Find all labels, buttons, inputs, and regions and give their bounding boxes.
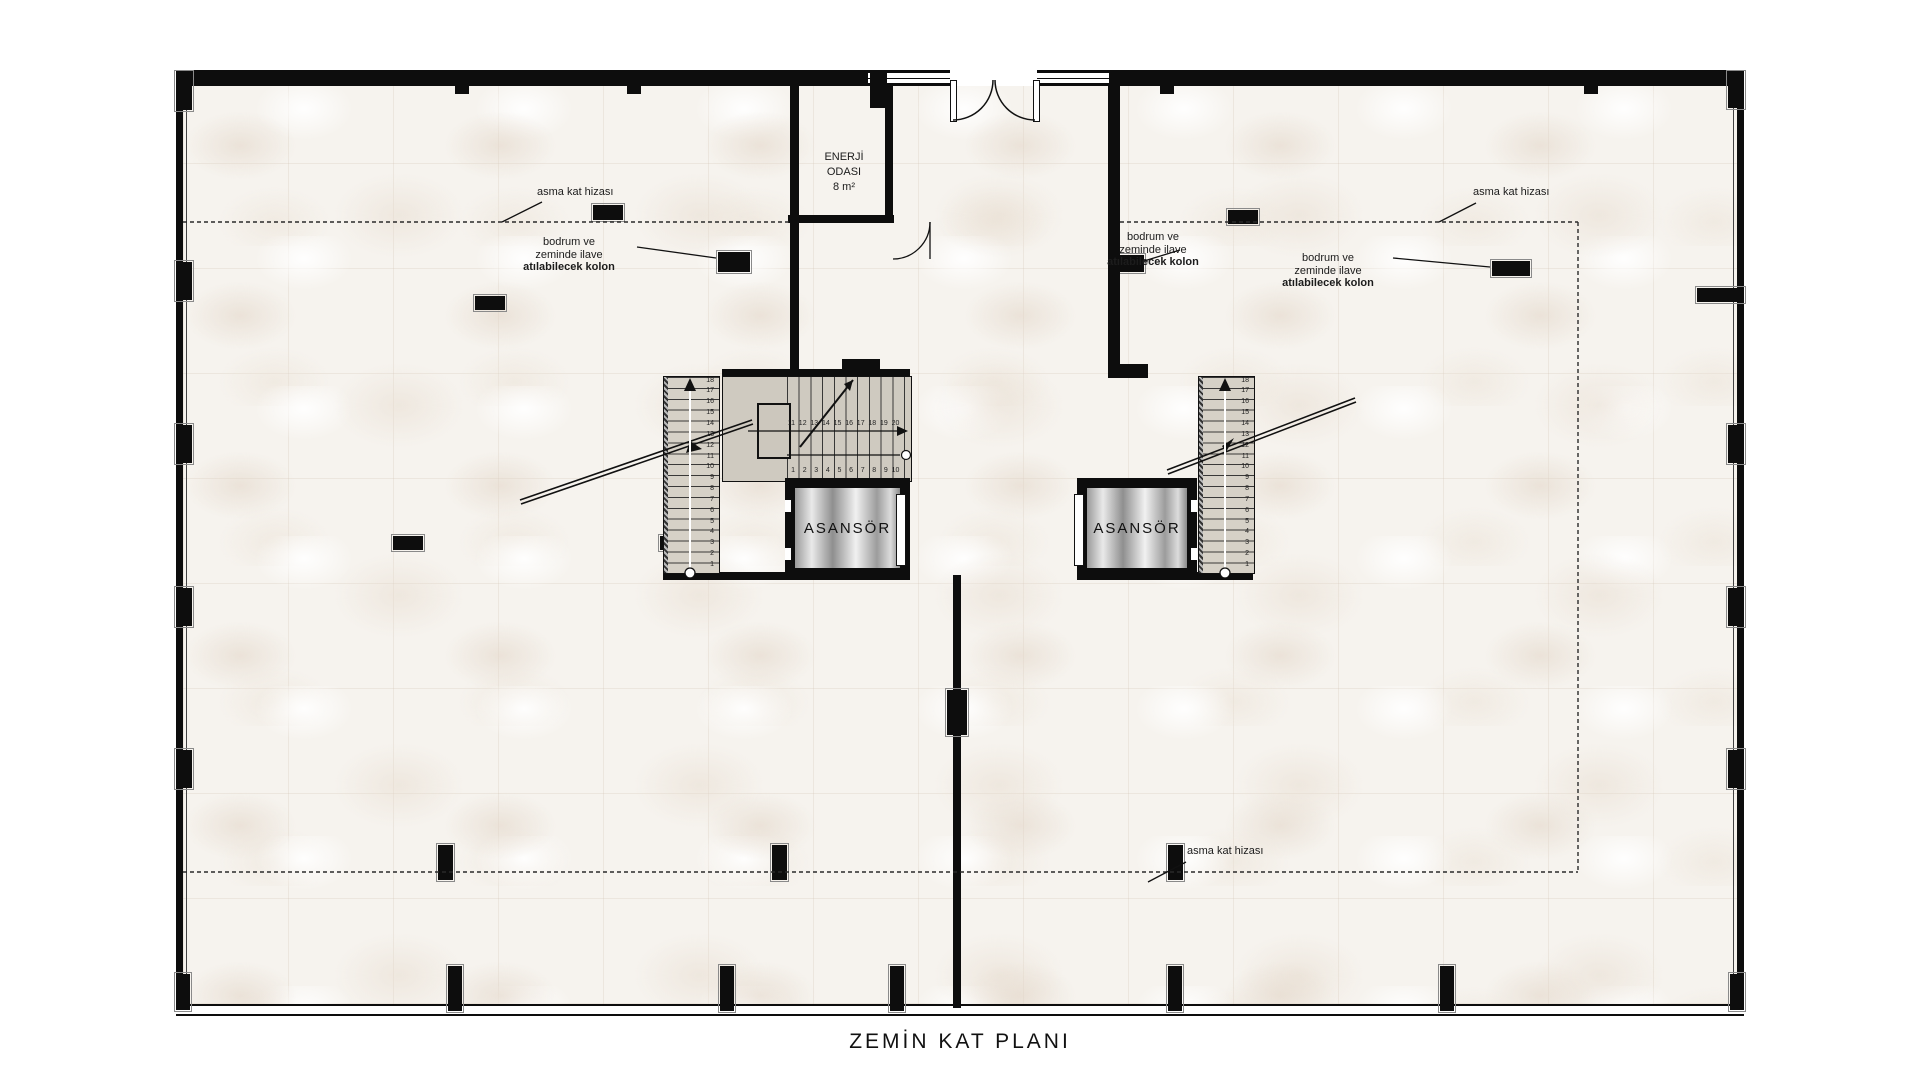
stair-step-number: 18 [702,377,714,385]
stair-step-number: 19 [876,420,888,428]
column [1168,845,1183,880]
stair-step-number: 16 [1237,398,1249,406]
stair-step-number: 4 [1237,528,1249,536]
column [176,72,192,110]
wall-stub [1108,364,1148,378]
stair-step-number: 2 [1237,550,1249,558]
stair-step-number: 1 [702,561,714,569]
elevator-left-label: ASANSÖR [804,520,891,537]
stair-step-number: 10 [702,463,714,471]
stair-step-number: 4 [818,467,830,475]
column [176,262,192,300]
stair-step-number: 15 [829,420,841,428]
mullion-tick [1584,86,1598,94]
column-note-left: bodrum ve zeminde ilave atılabilecek kol… [500,236,638,274]
column [475,296,505,310]
shaft-block [870,72,887,108]
entrance-door-leaf-right [1033,80,1040,122]
stair-step-number: 8 [1237,485,1249,493]
mezzanine-label-bottom: asma kat hizası [1187,845,1263,858]
mullion-tick [1160,86,1174,94]
column-note-line1: bodrum ve [1090,231,1216,244]
stair-step-number: 1 [783,467,795,475]
stair-step-number: 7 [702,496,714,504]
elevator-vent [785,548,791,560]
stair-step-number: 5 [1237,518,1249,526]
stair-step-number: 3 [806,467,818,475]
stair-step-number: 16 [702,398,714,406]
column-note-line3: atılabilecek kolon [1090,256,1216,269]
energy-room-area: 8 m² [796,180,892,195]
stair-step-number: 6 [1237,507,1249,515]
stair-step-number: 17 [702,387,714,395]
column-note-target-left [718,252,750,272]
stair-step-number: 4 [702,528,714,536]
stair-step-number: 6 [841,467,853,475]
energy-room-bottom-wall [788,215,894,223]
stair-step-number: 1 [1237,561,1249,569]
stair-eye [757,403,791,459]
column-note-line1: bodrum ve [500,236,638,249]
column-note-line2: zeminde ilave [1263,265,1393,278]
column [1728,72,1744,108]
mezzanine-label-top-right: asma kat hizası [1473,186,1549,199]
stair-step-number: 9 [702,474,714,482]
column-note-mid: bodrum ve zeminde ilave atılabilecek kol… [1090,231,1216,269]
stair-step-number: 8 [864,467,876,475]
stair-step-number: 13 [1237,431,1249,439]
wall-top-right-segment [1037,70,1744,86]
column-note-right: bodrum ve zeminde ilave atılabilecek kol… [1263,252,1393,290]
stair-step-number: 13 [702,431,714,439]
stair-step-number: 17 [1237,387,1249,395]
entrance-door-leaf-left [950,80,957,122]
column [1440,966,1454,1011]
wall-right-inner-line [1733,86,1734,1004]
storefront-glazing-right [1037,71,1109,85]
column-note-target-right [1492,261,1530,276]
energy-room-label: ENERJİ ODASI 8 m² [796,150,892,195]
stair-step-number: 12 [702,442,714,450]
stair-step-number: 12 [1237,442,1249,450]
column [1168,966,1182,1011]
column [1228,210,1258,224]
stair-step-number: 6 [702,507,714,515]
column [947,690,967,735]
column [593,205,623,220]
column [1697,288,1744,302]
elevator-right-label: ASANSÖR [1093,520,1180,537]
stair-step-number: 5 [702,518,714,526]
stair-step-number: 16 [841,420,853,428]
column [176,588,192,626]
column [720,966,734,1011]
stair-step-number: 9 [876,467,888,475]
stair-step-number: 2 [702,550,714,558]
stair-step-number: 2 [795,467,807,475]
stair-edge-hatch [1199,377,1203,573]
column-note-line2: zeminde ilave [1090,244,1216,257]
stair-step-number: 15 [702,409,714,417]
column [1728,750,1744,788]
stair-step-number: 20 [887,420,899,428]
stair-step-number: 8 [702,485,714,493]
column [448,966,462,1011]
mullion-tick [455,86,469,94]
energy-room-left-wall [790,86,799,378]
column [1730,974,1744,1010]
stair-step-number: 15 [1237,409,1249,417]
page-title: ZEMİN KAT PLANI [0,1030,1920,1054]
floor-plan-canvas: ASANSÖR ASANSÖR [0,0,1920,1080]
column [890,966,904,1011]
column [176,974,190,1010]
stair-step-number: 7 [853,467,865,475]
stair-step-number: 10 [887,467,899,475]
stair-step-number: 18 [864,420,876,428]
stair-step-number: 11 [702,453,714,461]
stair-step-number: 14 [702,420,714,428]
column-note-line1: bodrum ve [1263,252,1393,265]
column-note-line3: atılabilecek kolon [1263,277,1393,290]
column-note-line3: atılabilecek kolon [500,261,638,274]
column [772,845,787,880]
stair-step-number: 14 [1237,420,1249,428]
stair-step-number: 13 [806,420,818,428]
stair-treads [787,377,910,481]
column [438,845,453,880]
central-divider-wall [953,575,961,1008]
stair-edge-hatch [664,377,668,573]
stair-step-number: 5 [829,467,841,475]
elevator-vent [785,500,791,512]
stair-step-number: 3 [702,539,714,547]
column [393,536,423,550]
stair-step-number: 14 [818,420,830,428]
energy-room-name-line2: ODASI [796,165,892,180]
wall-top-left-segment [176,70,950,86]
elevator-vent [1191,548,1197,560]
stair-step-number: 11 [783,420,795,428]
column-note-line2: zeminde ilave [500,249,638,262]
stair-step-number: 12 [795,420,807,428]
column [176,750,192,788]
wall-left-inner-line [186,86,187,1004]
elevator-left-door [896,494,906,566]
wall-left [176,70,183,1011]
stair-step-number: 18 [1237,377,1249,385]
stair-step-number: 10 [1237,463,1249,471]
elevator-right-door [1074,494,1084,566]
stair-step-number: 11 [1237,453,1249,461]
column [1728,425,1744,463]
elevator-vent [1191,500,1197,512]
mezzanine-label-top-left: asma kat hizası [537,186,613,199]
elevator-right-cab: ASANSÖR [1087,488,1187,568]
column [176,425,192,463]
energy-room-name-line1: ENERJİ [796,150,892,165]
elevator-left-cab: ASANSÖR [795,488,900,568]
stair-step-number: 7 [1237,496,1249,504]
shaft-block [842,359,880,377]
column [1728,588,1744,626]
stair-step-number: 9 [1237,474,1249,482]
stair-step-number: 3 [1237,539,1249,547]
mullion-tick [627,86,641,94]
stair-step-number: 17 [853,420,865,428]
wall-right [1737,70,1744,1011]
